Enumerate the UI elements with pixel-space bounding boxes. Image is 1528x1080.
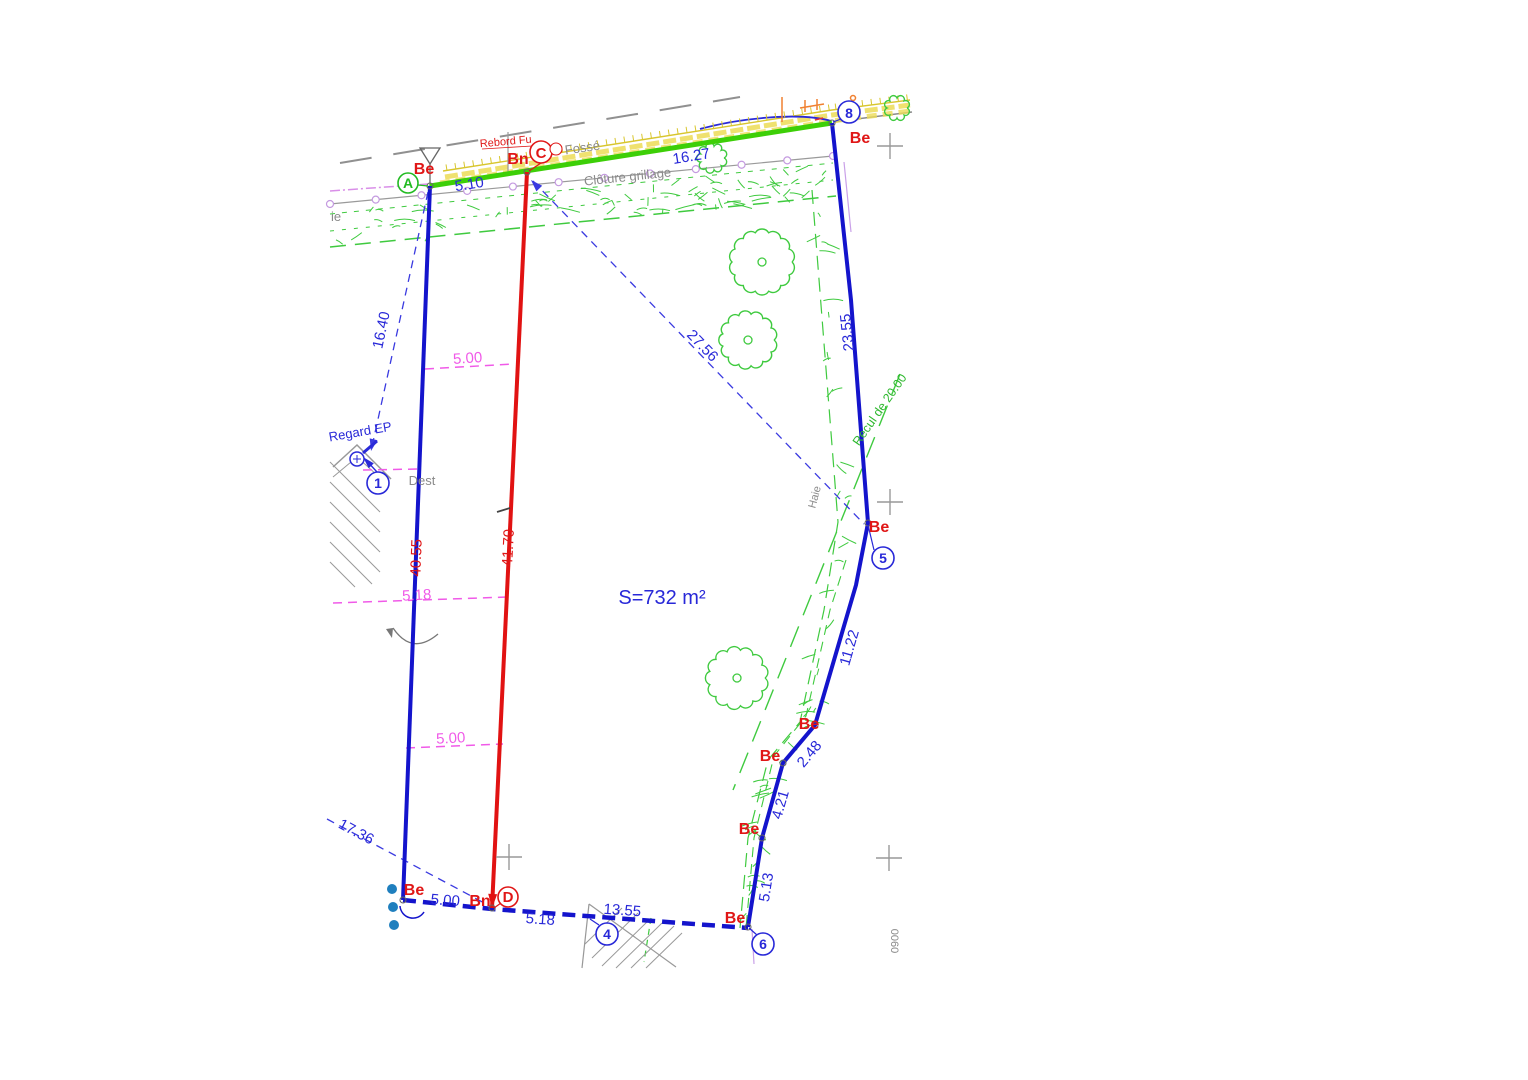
symbol-circle-u [550, 143, 562, 155]
bn-label: Bn [507, 151, 528, 168]
dim-5.18-bottom: 5.18 [525, 910, 555, 929]
dim-17.36: 17.36 [336, 816, 377, 849]
cloture-label: Clôture grillage [583, 164, 672, 188]
dim-23.55: 23.55 [837, 313, 858, 352]
regard-label: Regard EP [328, 419, 393, 445]
ie-label: ie [331, 209, 341, 224]
dim-13.55-bottom: 13.55 [603, 901, 642, 921]
be-label: Be [739, 821, 760, 838]
point-A-label: A [403, 175, 413, 191]
point-1-label: 1 [374, 475, 382, 491]
corner-arc [400, 906, 424, 918]
dim-5.00-bottom: 5.00 [430, 891, 460, 910]
point-6-label: 6 [759, 936, 767, 952]
gate-swing-arrowhead [386, 628, 393, 638]
dimension-labels: 5.10 16.27 16.40 40.55 41.70 23.55 27.56… [336, 145, 863, 929]
sheet-number: 0060 [888, 929, 900, 953]
haie-label: Haie [806, 485, 823, 510]
vegetation-band-right [644, 190, 846, 962]
boundary-marker-labels: Be Bn Be Be Be Be Be Be Be Bn [404, 130, 890, 927]
be-label: Be [850, 130, 871, 147]
point-labels: A C D 1 4 5 6 8 [374, 105, 887, 952]
manhole-icon [350, 441, 377, 472]
be-label: Be [725, 910, 746, 927]
dim-16.40: 16.40 [369, 310, 393, 350]
teal-dots [387, 884, 399, 930]
fosse-label: Fossé [564, 138, 601, 158]
point-8-label: 8 [845, 105, 853, 121]
be-label: Be [414, 161, 435, 178]
offset-5.18: 5.18 [402, 586, 432, 605]
arrowhead [531, 180, 542, 191]
area-label: S=732 m² [618, 587, 706, 609]
point-4-label: 4 [603, 926, 611, 942]
grid-cross [496, 133, 903, 871]
point-circles [367, 101, 894, 955]
be-label: Be [869, 519, 890, 536]
red-tick [497, 508, 510, 512]
boundary-right-blue [748, 123, 868, 927]
be-label: Be [760, 748, 781, 765]
dest-label: Dest [409, 473, 436, 488]
be-label: Be [404, 882, 425, 899]
lavender-lines [752, 162, 851, 964]
point-D-label: D [503, 889, 514, 906]
bn-label: Bn [469, 893, 490, 910]
dim-5.13: 5.13 [756, 872, 777, 904]
dim-41.70: 41.70 [499, 529, 518, 567]
gate-swing-arc [393, 628, 438, 644]
survey-plan: A C D 1 4 5 6 8 Be Bn Be Be Be Be Be Be … [0, 0, 1528, 1080]
point-5-label: 5 [879, 550, 887, 566]
offset-5.00-a: 5.00 [453, 349, 483, 368]
point-leaders [418, 119, 874, 935]
be-label: Be [799, 716, 820, 733]
building-corner [330, 445, 391, 587]
dim-4.21: 4.21 [768, 788, 792, 821]
offset-5.00-b: 5.00 [436, 729, 466, 748]
point-C-label: C [536, 145, 547, 162]
dim-40.55: 40.55 [407, 539, 425, 577]
dim-27.56: 27.56 [683, 326, 721, 365]
dim-5.10: 5.10 [454, 174, 486, 195]
vertex-circles [400, 120, 871, 930]
